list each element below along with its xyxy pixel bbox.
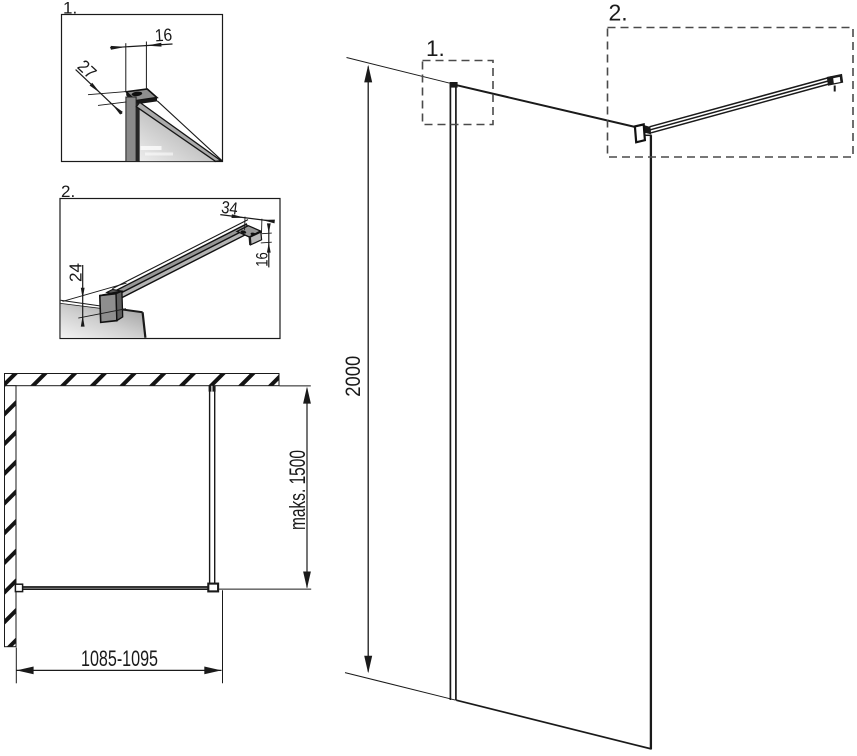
svg-text:2.: 2. (609, 0, 628, 25)
svg-text:2000: 2000 (342, 356, 365, 397)
svg-text:24: 24 (65, 263, 85, 282)
svg-text:34: 34 (220, 197, 239, 219)
svg-text:maks. 1500: maks. 1500 (285, 450, 310, 530)
svg-text:16: 16 (253, 252, 271, 267)
svg-text:1085-1095: 1085-1095 (81, 646, 158, 671)
svg-text:16: 16 (154, 24, 173, 45)
svg-text:1.: 1. (426, 36, 445, 61)
